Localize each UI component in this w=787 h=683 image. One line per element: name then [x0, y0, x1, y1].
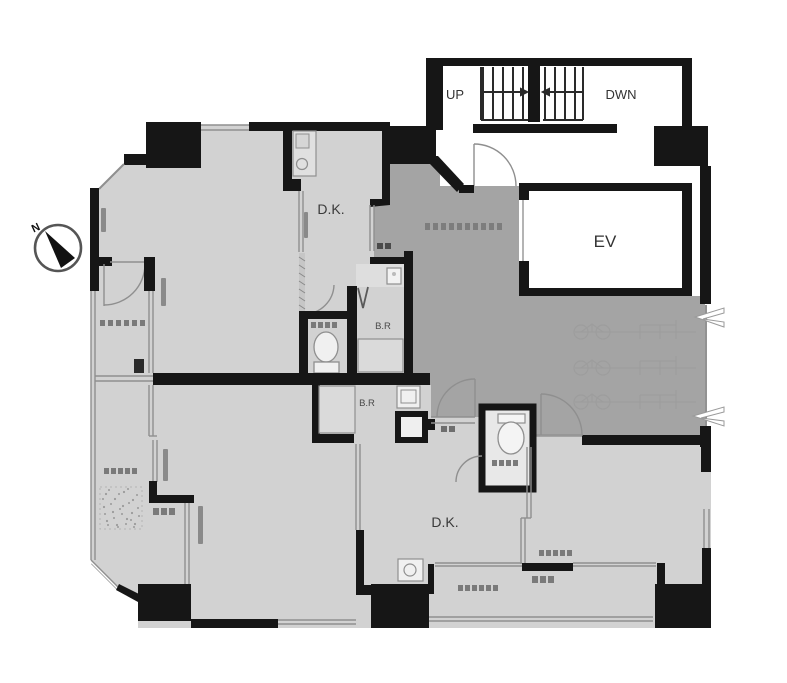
svg-text:UP: UP	[446, 87, 464, 102]
svg-text:B.R: B.R	[359, 398, 375, 409]
svg-text:EV: EV	[594, 232, 617, 251]
svg-text:B.R: B.R	[375, 321, 391, 332]
svg-text:D.K.: D.K.	[431, 514, 458, 530]
svg-text:DWN: DWN	[605, 87, 636, 102]
svg-text:D.K.: D.K.	[317, 201, 344, 217]
